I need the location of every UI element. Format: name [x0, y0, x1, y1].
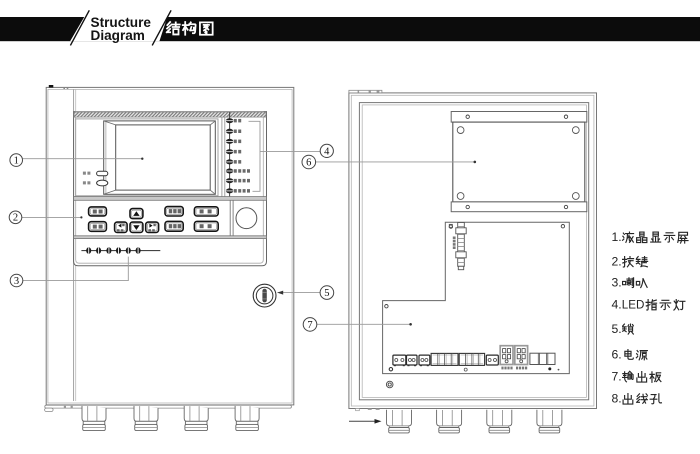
svg-text:7.: 7. [612, 370, 622, 384]
svg-text:4: 4 [324, 146, 330, 157]
svg-text:1: 1 [14, 156, 19, 167]
svg-text:8.: 8. [612, 392, 622, 406]
svg-text:5.: 5. [612, 322, 622, 336]
svg-text:5: 5 [324, 288, 329, 299]
svg-text:6: 6 [306, 157, 311, 168]
svg-text:7: 7 [307, 320, 312, 331]
svg-text:LED: LED [622, 299, 645, 312]
svg-text:1.: 1. [612, 230, 622, 244]
svg-text:3.: 3. [612, 276, 622, 290]
svg-text:3: 3 [14, 276, 19, 287]
svg-text:2: 2 [13, 213, 18, 224]
svg-text:4.: 4. [612, 298, 622, 312]
svg-text:6.: 6. [612, 348, 622, 362]
svg-text:Diagram: Diagram [91, 28, 145, 43]
svg-text:2.: 2. [612, 255, 622, 269]
